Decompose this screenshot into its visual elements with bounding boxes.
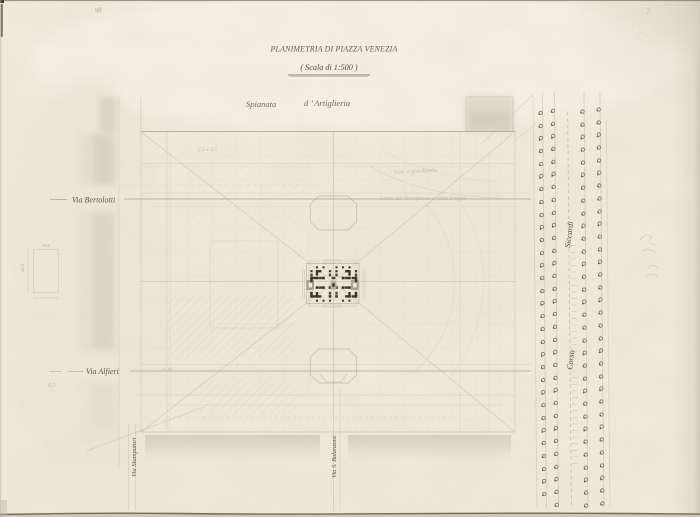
svg-text:Spianata: Spianata	[246, 99, 276, 109]
svg-text:2,5 x 2,5: 2,5 x 2,5	[198, 147, 217, 153]
svg-text:( Scala di 1:500 ): ( Scala di 1:500 )	[300, 63, 358, 72]
svg-text:PLANIMETRIA DI PIAZZA VENEZIA: PLANIMETRIA DI PIAZZA VENEZIA	[270, 44, 398, 54]
svg-text:d ’ Artiglieria: d ’ Artiglieria	[304, 98, 350, 108]
svg-text:m 40: m 40	[162, 366, 173, 373]
svg-text:2.: 2.	[646, 7, 652, 16]
svg-text:Via Stampatori: Via Stampatori	[131, 437, 138, 477]
svg-text:Via S. Balanzone: Via S. Balanzone	[331, 435, 338, 478]
svg-text:6,5: 6,5	[48, 383, 56, 389]
svg-text:Linea del Terrapieno e delle T: Linea del Terrapieno e delle Truppe	[379, 196, 467, 202]
svg-text:Via Alfieri: Via Alfieri	[86, 367, 119, 376]
svg-text:Via Bertolotti: Via Bertolotti	[72, 196, 115, 205]
